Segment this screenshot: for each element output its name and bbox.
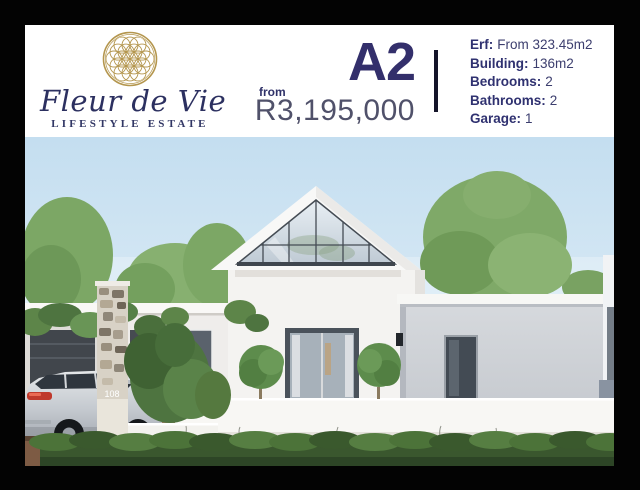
plan-code: A2: [348, 35, 415, 89]
flyer-header: Fleur de Vie LIFESTYLE ESTATE A2 from R3…: [25, 25, 614, 137]
plan-block: A2 from R3,195,000: [253, 35, 415, 135]
spec-erf: Erf:From 323.45m2: [470, 36, 614, 55]
spec-bedrooms: Bedrooms:2: [470, 73, 614, 92]
flyer: Fleur de Vie LIFESTYLE ESTATE A2 from R3…: [0, 0, 640, 490]
wall-sconce: [396, 333, 403, 346]
price: R3,195,000: [255, 94, 415, 128]
vertical-divider: [434, 50, 438, 112]
spec-list: Erf:From 323.45m2 Building:136m2 Bedroom…: [470, 36, 614, 129]
flyer-content: Fleur de Vie LIFESTYLE ESTATE A2 from R3…: [25, 25, 614, 466]
spec-garage: Garage:1: [470, 110, 614, 129]
french-doors: [285, 328, 359, 398]
hedge: [29, 431, 614, 466]
house-number: 108: [104, 389, 119, 399]
brand-tagline: LIFESTYLE ESTATE: [40, 118, 220, 130]
spec-bathrooms: Bathrooms:2: [470, 92, 614, 111]
flower-of-life-icon: [101, 30, 159, 88]
house-render: 108: [25, 137, 614, 466]
brand-logo: Fleur de Vie LIFESTYLE ESTATE: [40, 25, 220, 137]
spec-building: Building:136m2: [470, 55, 614, 74]
wing-window: [445, 336, 477, 400]
brand-name: Fleur de Vie: [40, 85, 220, 117]
